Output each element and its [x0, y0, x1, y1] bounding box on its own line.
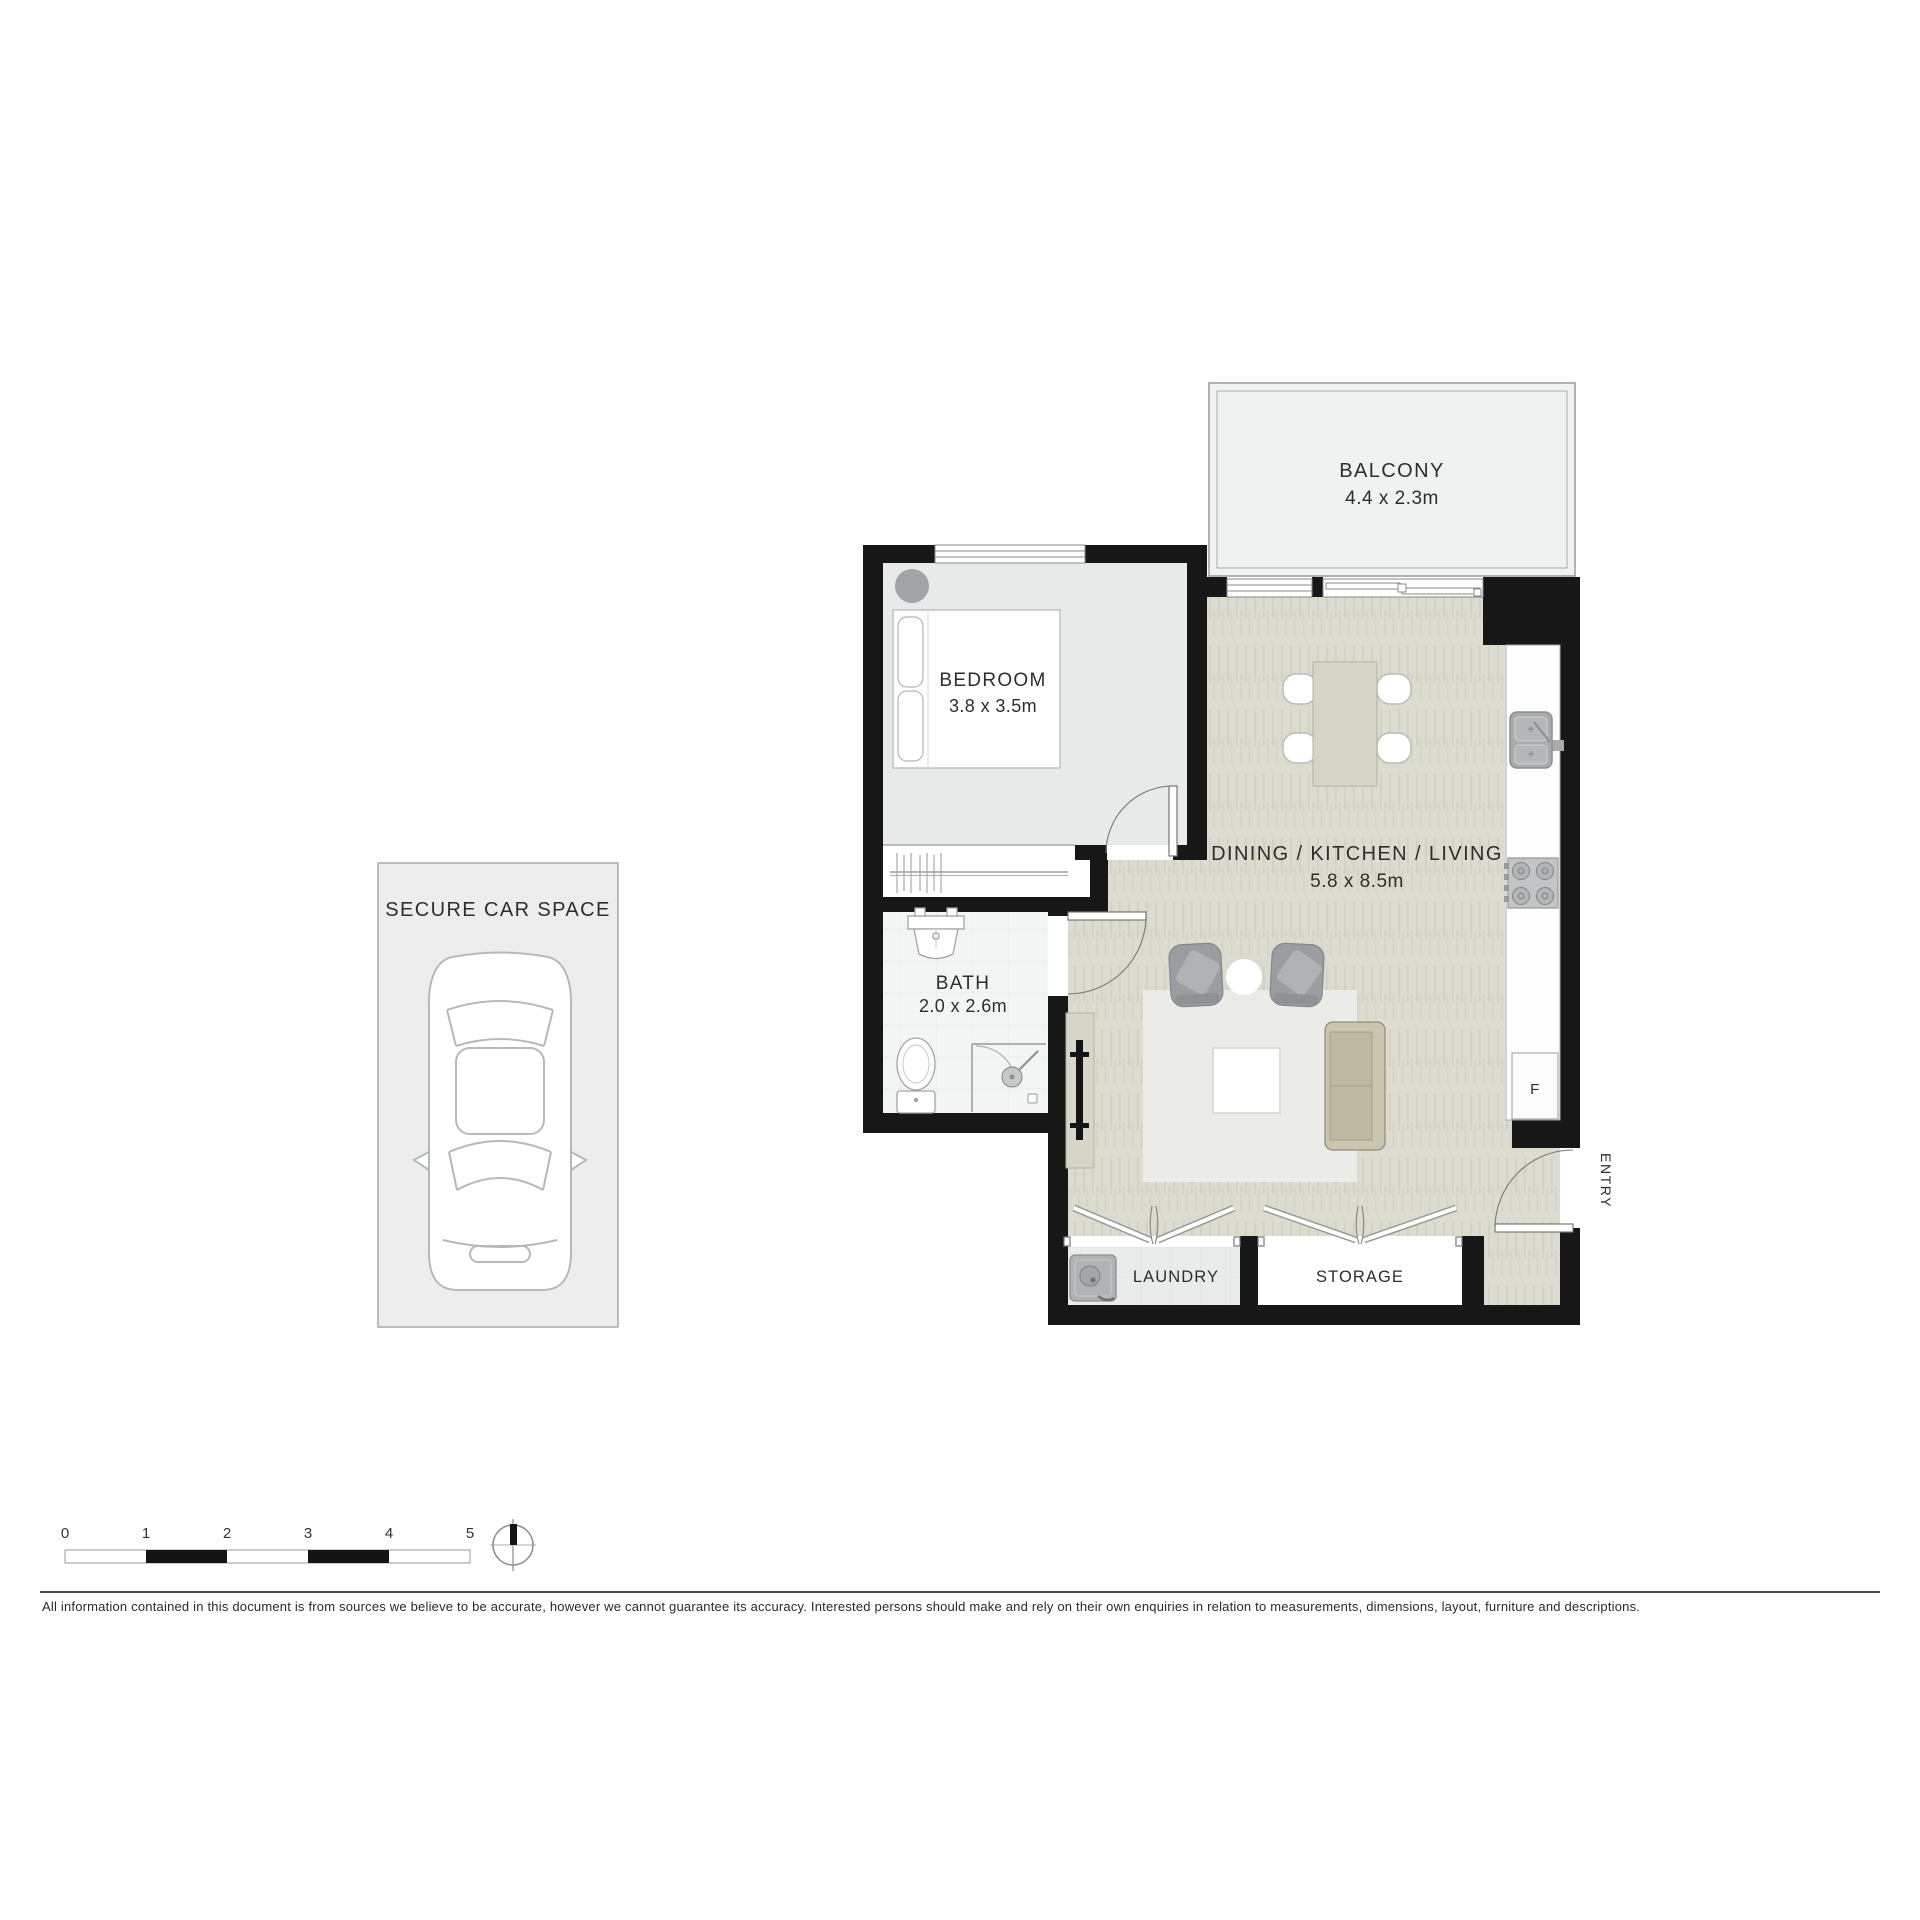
car-icon: [414, 953, 586, 1291]
disclaimer: All information contained in this docume…: [40, 1592, 1880, 1614]
kitchen: F: [1504, 645, 1564, 1120]
fridge: F: [1512, 1053, 1558, 1119]
storage-label: STORAGE: [1316, 1268, 1404, 1286]
scale-tick: 1: [142, 1525, 150, 1542]
scale-tick: 5: [466, 1525, 474, 1542]
armchair: [1168, 943, 1223, 1008]
cooktop-icon: [1504, 858, 1558, 908]
coffee-table: [1213, 1048, 1280, 1113]
scale-tick: 2: [223, 1525, 231, 1542]
bedroom-window: [935, 545, 1085, 563]
laundry-label: LAUNDRY: [1133, 1268, 1219, 1286]
balcony-sliding-door: [1323, 579, 1483, 597]
armchair: [1269, 943, 1324, 1008]
dining-table: [1313, 662, 1377, 786]
scale-tick: 4: [385, 1525, 393, 1542]
fridge-label: F: [1530, 1081, 1540, 1098]
sofa: [1325, 1022, 1385, 1150]
bath-dim: 2.0 x 2.6m: [919, 996, 1007, 1016]
disclaimer-text: All information contained in this docume…: [42, 1599, 1640, 1614]
scale-tick: 0: [61, 1525, 69, 1542]
balcony-label: BALCONY: [1339, 460, 1444, 482]
washing-machine-icon: [1070, 1255, 1116, 1301]
side-table: [1226, 959, 1262, 995]
bedroom-dim: 3.8 x 3.5m: [949, 696, 1037, 716]
floor-plan-drawing: F: [0, 0, 1920, 1920]
car-space-label: SECURE CAR SPACE: [385, 899, 610, 921]
living-label: DINING / KITCHEN / LIVING: [1211, 843, 1503, 865]
bedroom-label: BEDROOM: [939, 670, 1046, 691]
balcony-dim: 4.4 x 2.3m: [1345, 488, 1439, 509]
north-compass-icon: [490, 1519, 536, 1571]
entry-label: ENTRY: [1598, 1153, 1614, 1208]
car-space: [378, 863, 618, 1327]
living-dim: 5.8 x 8.5m: [1310, 871, 1404, 892]
toilet-icon: [897, 1038, 935, 1113]
living-window: [1227, 579, 1312, 597]
scale-tick: 3: [304, 1525, 312, 1542]
floor-plan-page: F: [0, 0, 1920, 1920]
bedside-table: [895, 569, 929, 603]
tv-unit: [1066, 1013, 1094, 1168]
bath-label: BATH: [936, 973, 990, 994]
scale-bar: 0 1 2 3 4 5: [61, 1525, 474, 1563]
